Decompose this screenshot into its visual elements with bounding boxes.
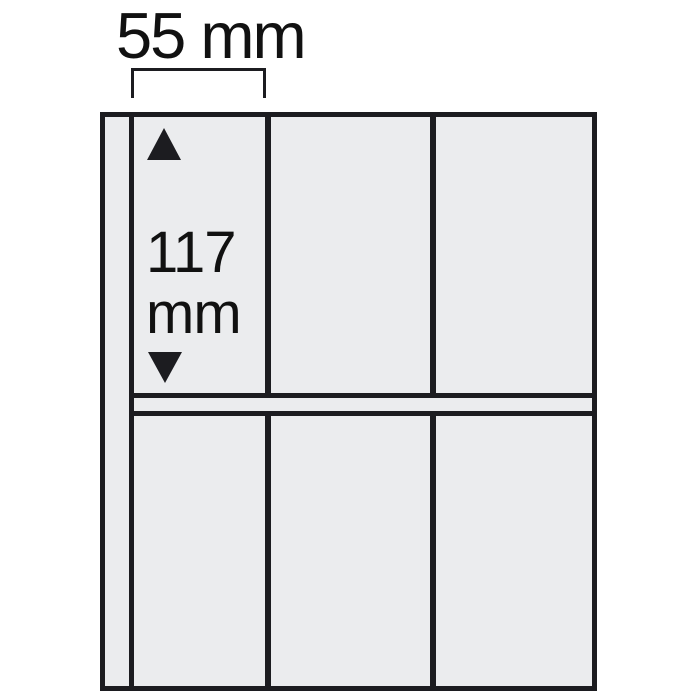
width-dimension-label: 55 mm <box>116 0 305 72</box>
width-dimension-bracket <box>131 68 266 98</box>
height-dimension-label: 117 mm <box>146 222 241 344</box>
column-divider-row2-left <box>265 416 271 686</box>
column-divider-row2-right <box>430 416 436 686</box>
column-divider-row1-left <box>265 117 271 393</box>
pocket-cell-row2-col2 <box>271 416 430 686</box>
pocket-cell-row1-col2 <box>271 117 430 393</box>
pocket-page-diagram: 55 mm 117 mm <box>0 0 700 700</box>
pocket-cell-row1-col3 <box>436 117 592 393</box>
column-divider-row1-right <box>430 117 436 393</box>
height-dimension-value: 117 <box>146 222 241 283</box>
height-dimension-unit: mm <box>146 283 241 344</box>
pocket-cell-row2-col1 <box>134 416 265 686</box>
dimension-arrow-down-icon <box>148 352 182 383</box>
dimension-arrow-up-icon <box>147 128 181 160</box>
row-separator-line-bottom <box>134 411 592 416</box>
row-separator-line-top <box>134 393 592 398</box>
pocket-cell-row2-col3 <box>436 416 592 686</box>
